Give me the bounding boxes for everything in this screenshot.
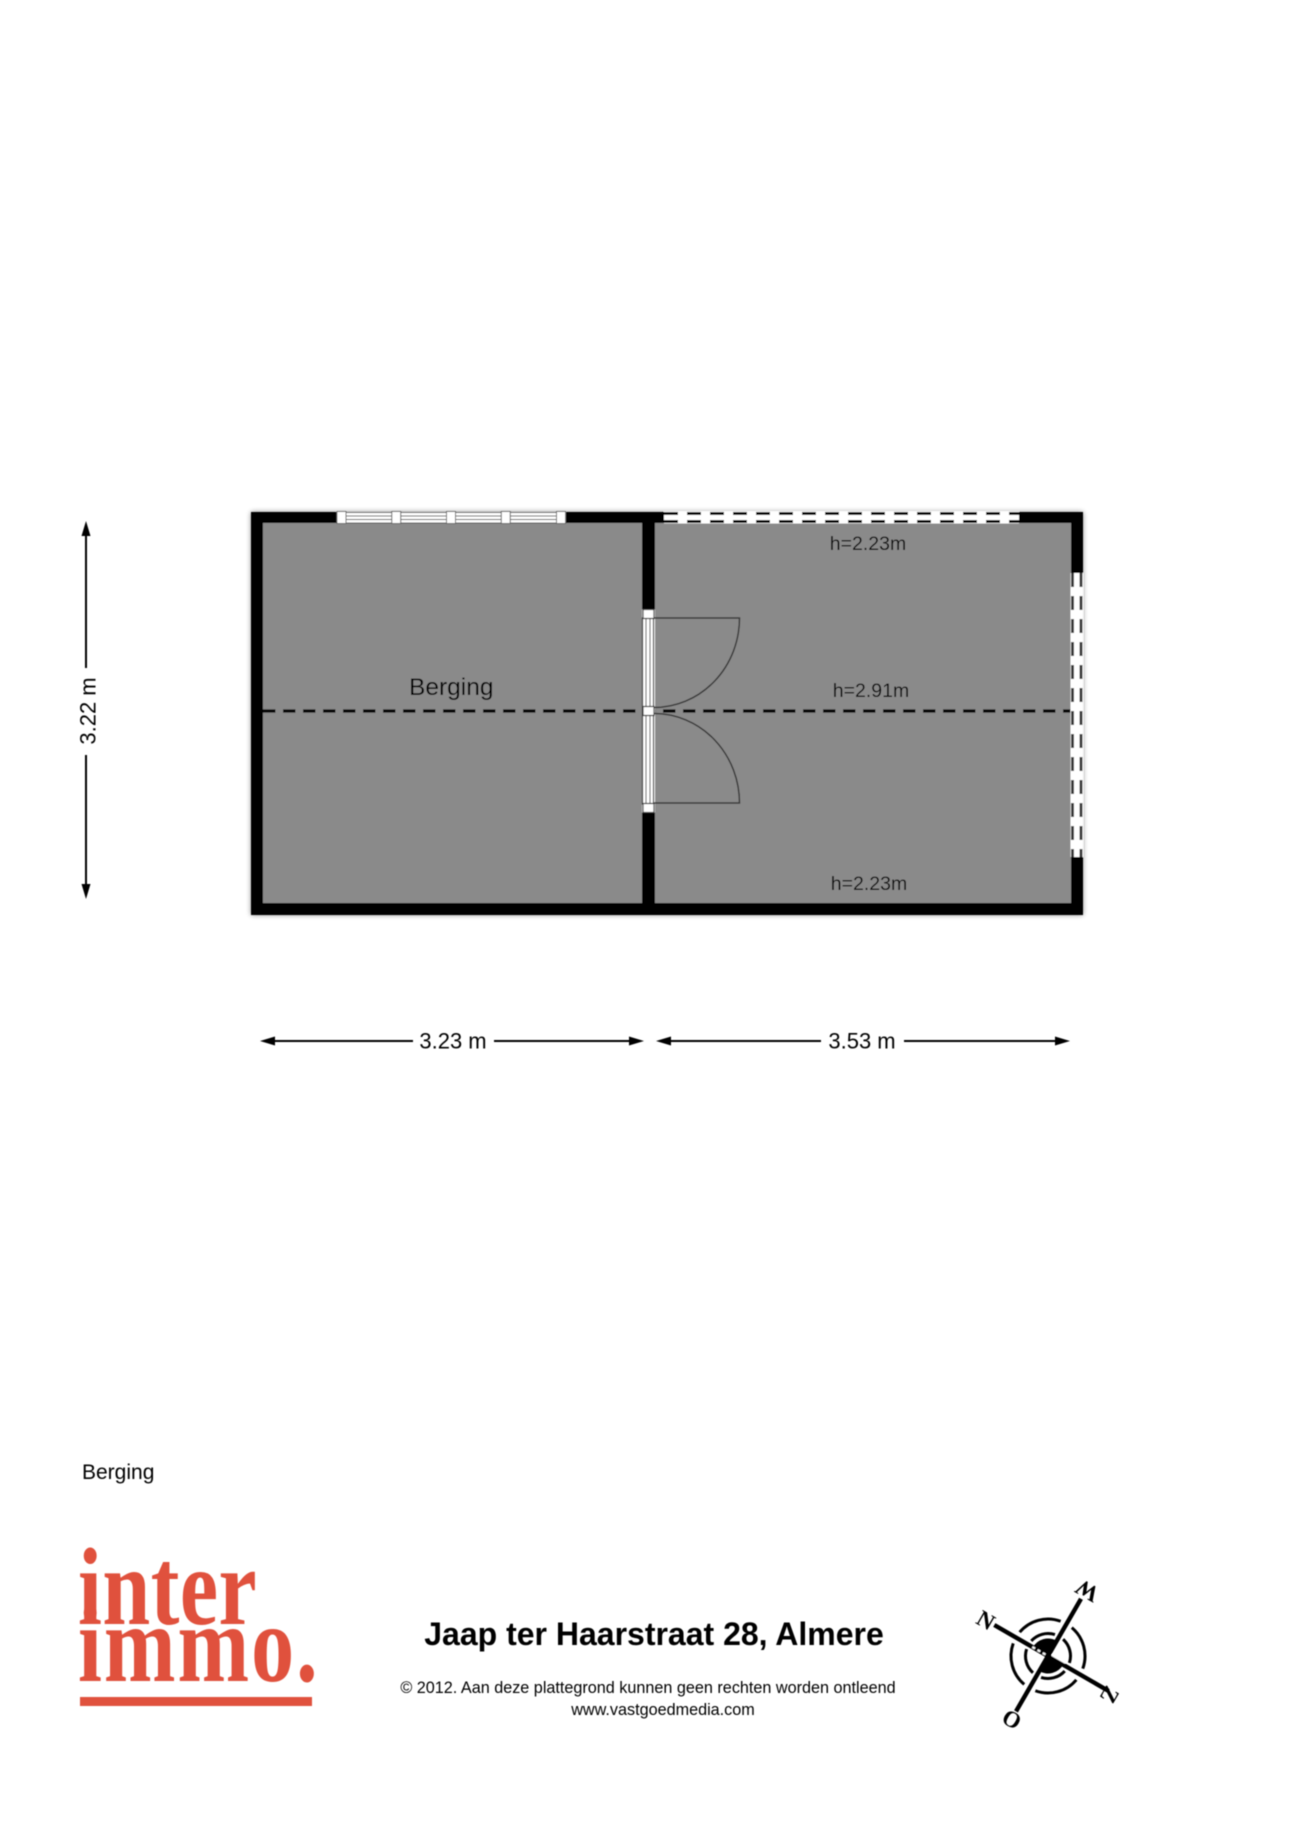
svg-text:www.vastgoedmedia.com: www.vastgoedmedia.com [570,1701,755,1719]
svg-text:3.53 m: 3.53 m [828,1029,895,1054]
svg-text:h=2.23m: h=2.23m [830,533,906,555]
svg-text:© 2012. Aan deze plattegrond k: © 2012. Aan deze plattegrond kunnen geen… [400,1679,895,1697]
svg-text:3.22 m: 3.22 m [76,677,101,744]
svg-text:Berging: Berging [409,674,493,701]
svg-text:h=2.91m: h=2.91m [833,680,909,702]
svg-text:Jaap ter Haarstraat 28, Almere: Jaap ter Haarstraat 28, Almere [424,1616,884,1652]
svg-text:Berging: Berging [82,1461,154,1484]
svg-text:immo.: immo. [78,1584,320,1705]
svg-text:h=2.23m: h=2.23m [831,873,907,895]
svg-text:3.23 m: 3.23 m [419,1029,486,1054]
